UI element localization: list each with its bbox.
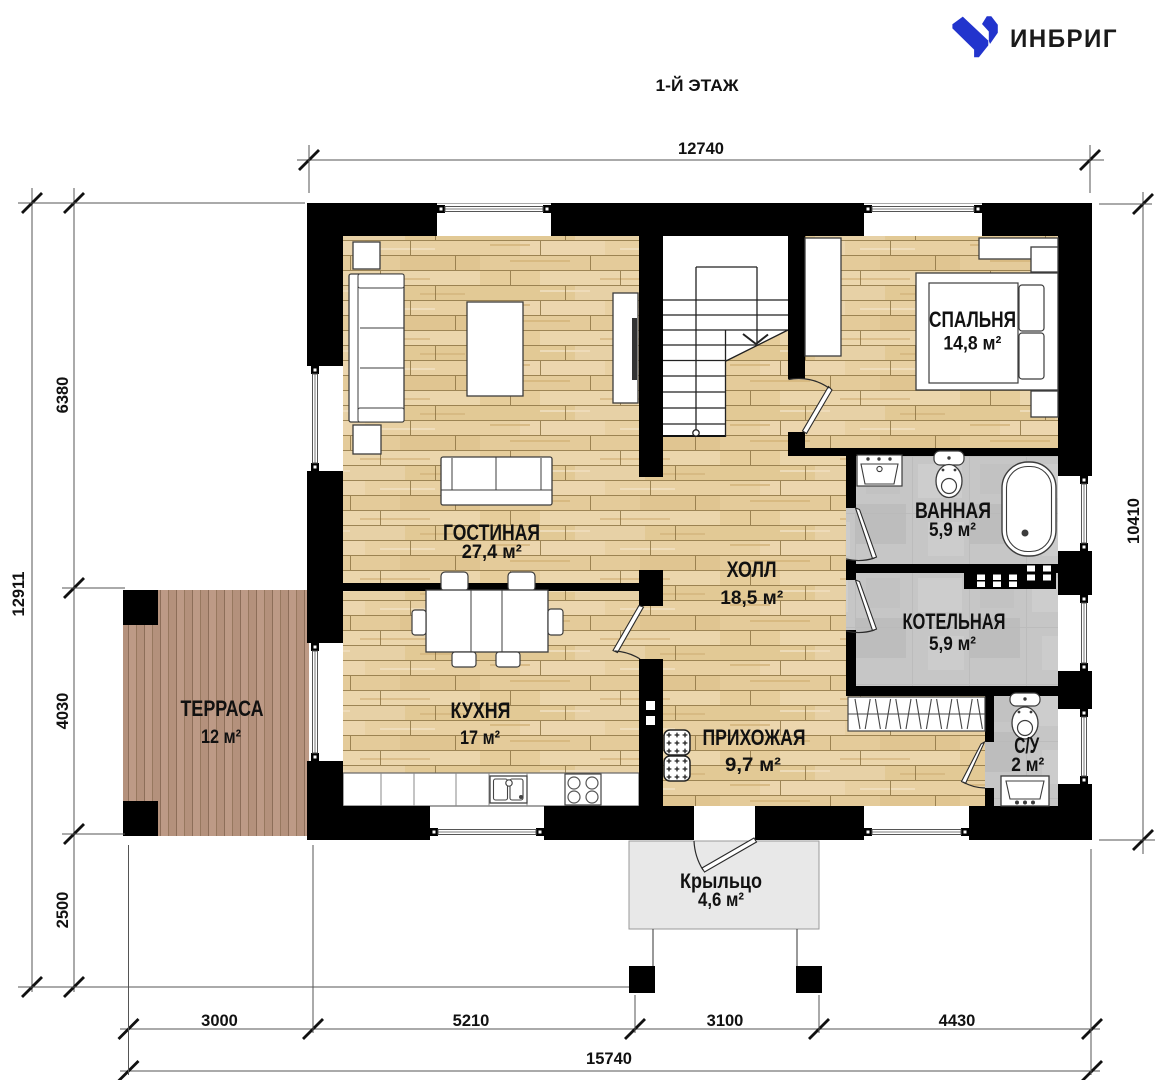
svg-text:ХОЛЛ: ХОЛЛ [727,557,777,582]
svg-text:КОТЕЛЬНАЯ: КОТЕЛЬНАЯ [903,609,1006,634]
svg-text:4,6 м²: 4,6 м² [698,889,744,911]
svg-text:ИНБРИГ: ИНБРИГ [1010,25,1118,53]
svg-text:12 м²: 12 м² [201,726,241,748]
svg-text:3000: 3000 [201,1012,238,1030]
svg-text:12911: 12911 [10,572,28,617]
svg-text:4030: 4030 [54,693,72,730]
svg-text:6380: 6380 [54,377,72,414]
svg-text:5,9 м²: 5,9 м² [929,633,976,655]
svg-text:15740: 15740 [586,1050,632,1068]
svg-text:СПАЛЬНЯ: СПАЛЬНЯ [929,307,1016,332]
svg-text:12740: 12740 [678,140,724,158]
svg-text:4430: 4430 [939,1012,976,1030]
svg-text:27,4 м²: 27,4 м² [462,541,522,563]
svg-text:14,8 м²: 14,8 м² [943,333,1001,355]
svg-text:2500: 2500 [54,892,72,929]
svg-text:ТЕРРАСА: ТЕРРАСА [181,696,264,721]
svg-text:10410: 10410 [1125,498,1143,544]
svg-text:КУХНЯ: КУХНЯ [451,698,511,723]
svg-text:9,7 м²: 9,7 м² [725,754,782,776]
svg-text:5210: 5210 [453,1012,490,1030]
svg-text:5,9 м²: 5,9 м² [929,519,976,541]
svg-text:2 м²: 2 м² [1011,754,1044,776]
svg-text:18,5 м²: 18,5 м² [720,587,783,609]
svg-text:1-Й ЭТАЖ: 1-Й ЭТАЖ [656,76,740,95]
svg-text:17 м²: 17 м² [460,727,500,749]
svg-text:ПРИХОЖАЯ: ПРИХОЖАЯ [703,725,806,750]
svg-text:3100: 3100 [707,1012,744,1030]
